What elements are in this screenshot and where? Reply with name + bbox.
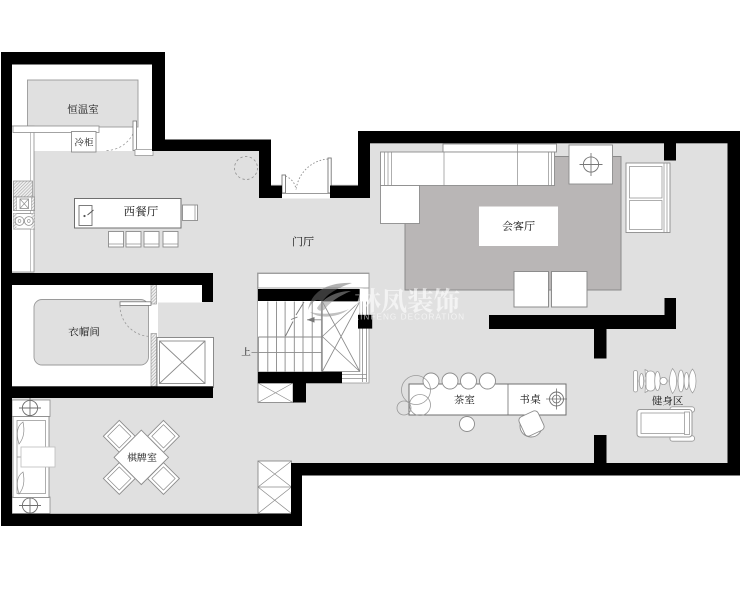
svg-text:冷柜: 冷柜 [74, 134, 94, 148]
svg-text:LINFENG DECORATION: LINFENG DECORATION [355, 313, 466, 322]
svg-text:上: 上 [241, 344, 251, 358]
svg-text:门厅: 门厅 [292, 234, 314, 250]
svg-text:衣帽间: 衣帽间 [68, 324, 100, 339]
svg-text:会客厅: 会客厅 [502, 218, 535, 234]
svg-text:恒温室: 恒温室 [67, 102, 99, 117]
svg-text:西餐厅: 西餐厅 [124, 204, 159, 220]
svg-text:棋牌室: 棋牌室 [127, 449, 157, 464]
svg-text:书桌: 书桌 [520, 392, 541, 407]
svg-text:茶室: 茶室 [454, 392, 475, 407]
svg-text:健身区: 健身区 [652, 393, 684, 408]
